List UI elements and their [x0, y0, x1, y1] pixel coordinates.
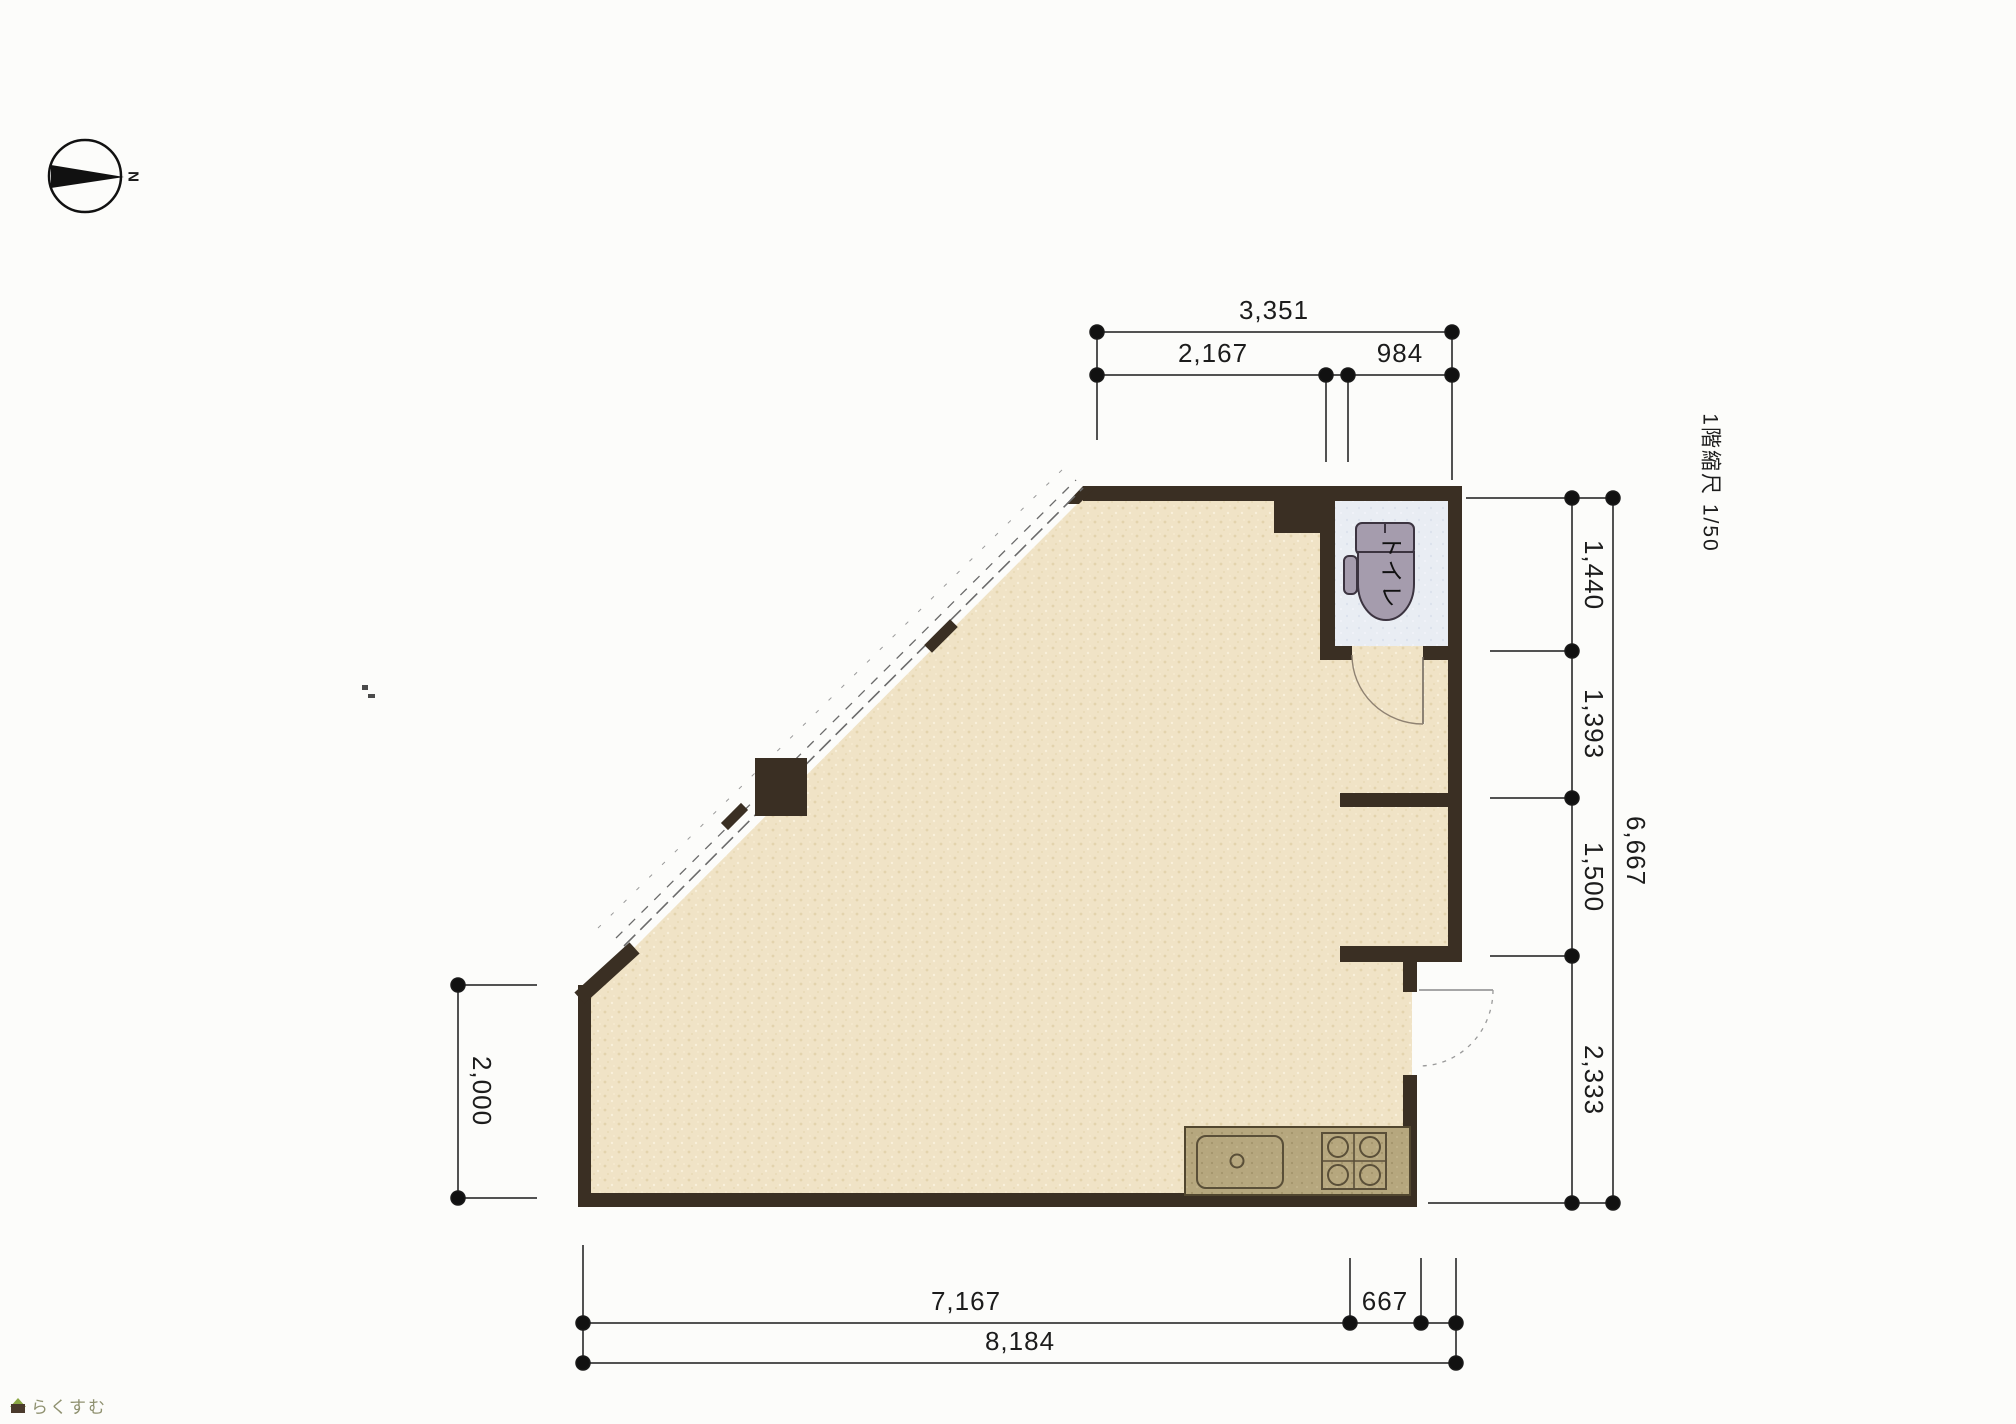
dim-right-seg2-label: 1,393: [1581, 689, 1607, 759]
wall-right-upper: [1448, 486, 1462, 962]
dim-bottom-seg2-label: 667: [1362, 1288, 1408, 1314]
dim-left-seg1-label: 2,000: [469, 1056, 495, 1126]
dim-right-total-label: 6,667: [1623, 816, 1649, 886]
logo-house-icon: [10, 1398, 26, 1413]
toilet-label: トイレ: [1380, 535, 1403, 610]
entrance-door-arc: [1419, 990, 1493, 1066]
dim-right-seg1-label: 1,440: [1581, 540, 1607, 610]
wall-toilet-stub-left: [1320, 646, 1352, 660]
scan-speck-2: [368, 694, 375, 698]
diagonal-post-small: [728, 810, 741, 823]
logo-text: らくすむ: [31, 1393, 107, 1418]
north-compass: [49, 140, 124, 212]
dim-bottom-total-label: 8,184: [985, 1328, 1055, 1354]
dim-top-seg1-label: 2,167: [1178, 340, 1248, 366]
kitchen-counter-group: [1185, 1127, 1410, 1195]
dim-bottom-seg1-label: 7,167: [931, 1288, 1001, 1314]
wall-toilet-left: [1320, 501, 1335, 653]
wall-top: [1083, 486, 1462, 501]
floor-plan-drawing: [0, 0, 2016, 1424]
wall-toilet-stub-right: [1423, 646, 1448, 660]
dim-right-seg4-label: 2,333: [1581, 1045, 1607, 1115]
column: [755, 758, 807, 816]
scale-note: 1階縮尺 1/50: [1700, 413, 1721, 552]
wall-top-notch: [1274, 486, 1320, 533]
wall-right-lower-a: [1403, 962, 1417, 992]
dim-top-total-label: 3,351: [1239, 297, 1309, 323]
wall-left: [578, 985, 591, 1207]
wall-step: [1340, 946, 1462, 962]
scan-speck-1: [362, 685, 368, 690]
dim-top-seg2-label: 984: [1377, 340, 1423, 366]
wall-interior-stub: [1340, 793, 1448, 807]
site-logo: らくすむ: [10, 1393, 107, 1418]
toilet-arm: [1344, 556, 1357, 594]
compass-north-label: N: [126, 171, 141, 183]
compass-needle: [51, 165, 124, 188]
floor-plan-page: 3,351 2,167 984 1,440 1,393 1,500 2,333 …: [0, 0, 2016, 1424]
dim-right-seg3-label: 1,500: [1581, 842, 1607, 912]
